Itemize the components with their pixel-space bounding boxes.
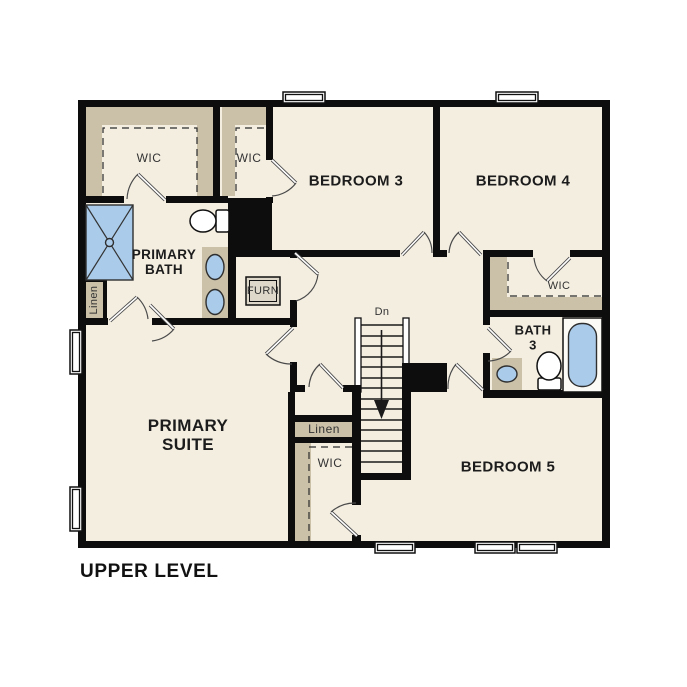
label-bedroom5: BEDROOM 5 (461, 459, 555, 476)
toilet-primary-icon (190, 210, 229, 232)
stair-rail-left (355, 318, 361, 392)
label-wic-bedroom3: WIC (237, 151, 262, 165)
window-left-suite-1 (70, 330, 82, 374)
label-bedroom3: BEDROOM 3 (309, 173, 403, 190)
window-left-suite-2 (70, 487, 82, 531)
label-linen-bath: Linen (88, 286, 100, 315)
stair-rail-right (403, 318, 409, 365)
label-furnace: FURN (247, 285, 279, 297)
window-top-bedroom3 (283, 92, 325, 103)
label-bedroom4: BEDROOM 4 (476, 173, 570, 190)
window-bottom-bedroom5-1 (375, 542, 415, 553)
label-primary-suite: PRIMARY SUITE (128, 416, 248, 454)
label-bath3: BATH 3 (509, 323, 557, 352)
bathtub-icon (563, 318, 602, 392)
window-bottom-bedroom5-2 (475, 542, 515, 553)
label-wic-bedroom4: WIC (548, 280, 571, 292)
label-primary-bath: PRIMARY BATH (117, 247, 212, 277)
floor-plan-drawing (0, 0, 687, 687)
window-top-bedroom4 (496, 92, 538, 103)
plan-title: UPPER LEVEL (80, 561, 219, 583)
floor-plan: WIC WIC BEDROOM 3 BEDROOM 4 PRIMARY BATH… (0, 0, 687, 687)
label-linen-hall: Linen (308, 422, 340, 436)
toilet-bath3-icon (537, 352, 561, 390)
label-wic-primary: WIC (137, 151, 162, 165)
label-wic-bedroom5: WIC (318, 456, 343, 470)
vanity-bath3-sink-icon (497, 366, 517, 382)
window-bottom-bedroom5-3 (517, 542, 557, 553)
label-stairs-down: Dn (375, 306, 390, 318)
